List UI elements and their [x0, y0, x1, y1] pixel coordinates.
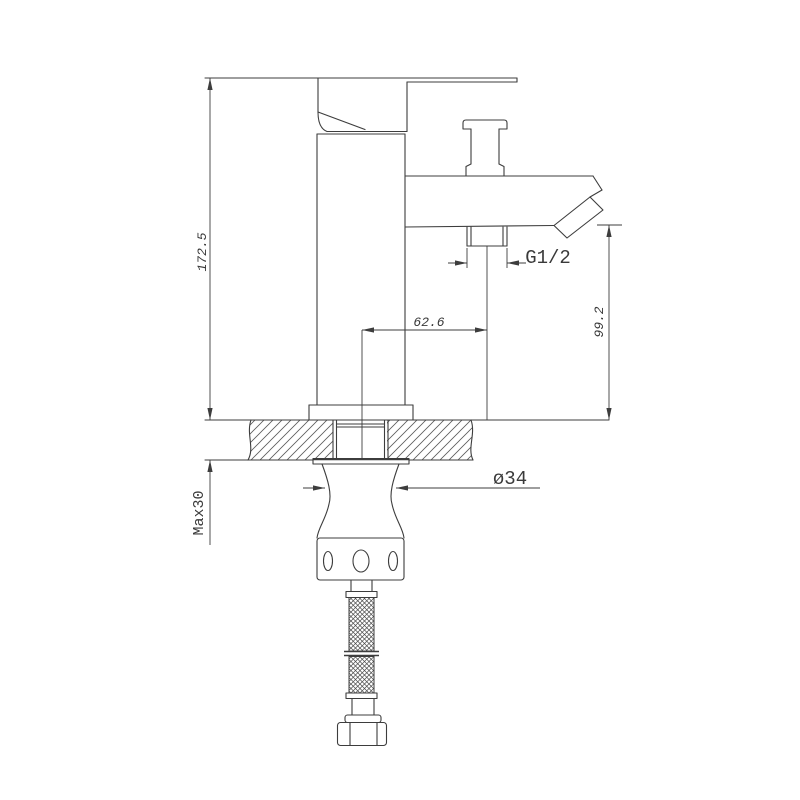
- dim-label-thread-size: G1/2: [525, 247, 571, 269]
- dimension-thread-size: G1/2: [448, 247, 571, 269]
- technical-drawing-page: 172.5 Max30 62.6 99.2 G1/2: [0, 0, 800, 800]
- countertop-section: [205, 420, 609, 460]
- dim-label-hole-diameter: ø34: [493, 468, 527, 490]
- dim-label-spout-offset: 62.6: [413, 315, 444, 330]
- faucet-dimension-drawing: 172.5 Max30 62.6 99.2 G1/2: [0, 0, 800, 800]
- shank-lower-body: [317, 464, 404, 538]
- dimension-overall-height: 172.5: [195, 78, 213, 420]
- diverter-knob: [463, 120, 507, 176]
- aerator-tip: [554, 197, 603, 238]
- mounting-shank: [333, 420, 388, 459]
- dimension-hole-diameter: ø34: [303, 468, 540, 491]
- thread-stub: [467, 227, 507, 246]
- dim-label-max-deck-thickness: Max30: [191, 490, 208, 535]
- hex-nut: [338, 723, 387, 746]
- dimension-outlet-height: 99.2: [592, 225, 622, 420]
- dim-label-outlet-height: 99.2: [592, 306, 607, 337]
- dim-label-overall-height: 172.5: [195, 232, 210, 271]
- mounting-flange: [309, 405, 413, 420]
- washer-plate: [313, 459, 409, 465]
- supply-hose: [344, 592, 381, 723]
- faucet-handle-lever: [205, 78, 517, 132]
- mounting-bracket: [317, 538, 404, 592]
- dimension-max-deck-thickness: Max30: [191, 460, 213, 545]
- faucet-body-barrel: [317, 134, 405, 405]
- spout: [405, 176, 602, 227]
